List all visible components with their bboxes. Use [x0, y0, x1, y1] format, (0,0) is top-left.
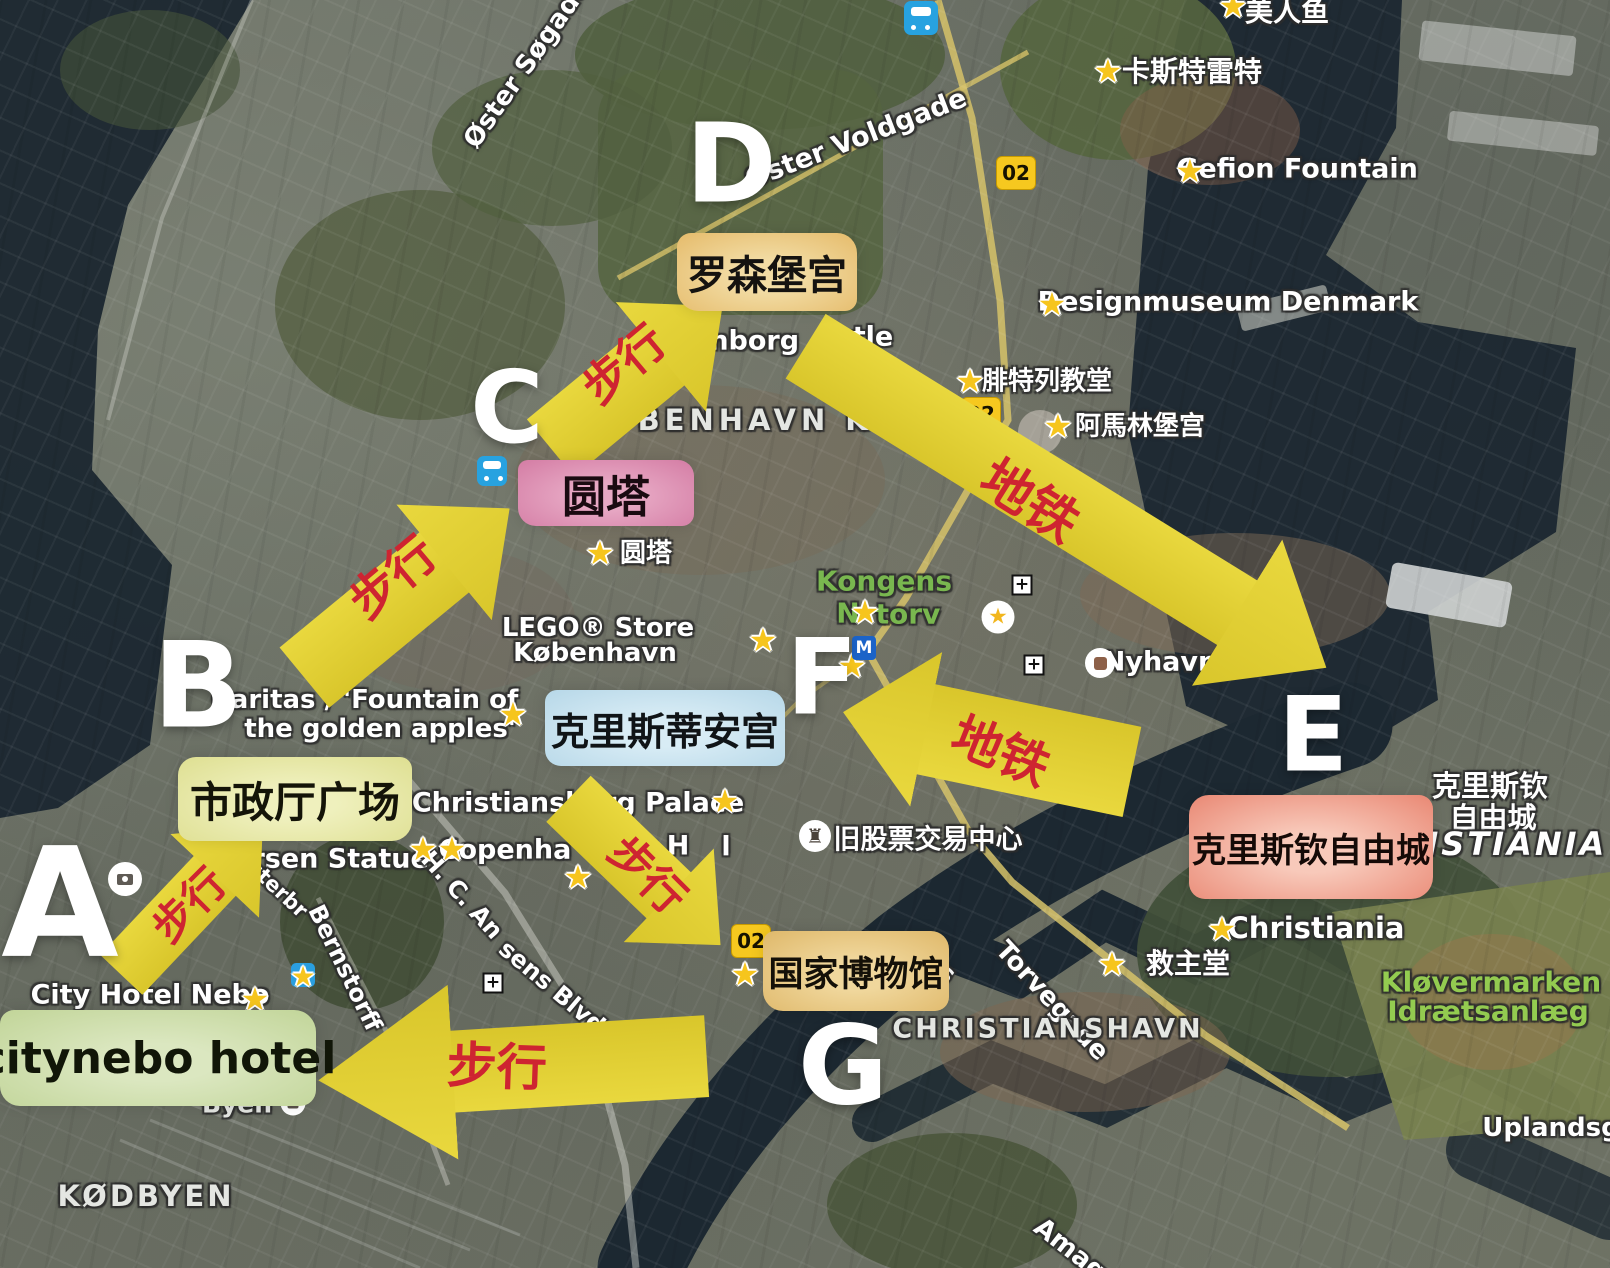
poi-star-icon[interactable]: ★: [438, 833, 467, 865]
rosenborg-castle-label: 罗森堡宫: [677, 233, 857, 311]
christiania-freetown-label: 克里斯钦自由城: [1189, 795, 1433, 899]
map-place-label: Christiania: [1228, 911, 1405, 945]
route-letter-A: A: [1, 828, 119, 980]
route-letter-D: D: [685, 109, 776, 219]
route-letter-C: C: [470, 358, 543, 458]
saved-place-icon[interactable]: ★: [982, 601, 1015, 634]
train-station-icon[interactable]: [904, 1, 938, 35]
transit-star-icon[interactable]: ★: [291, 963, 315, 987]
map-place-label: KØDBYEN: [57, 1179, 234, 1213]
poi-star-icon: ★: [290, 963, 315, 991]
route-letter-E: E: [1278, 684, 1348, 787]
route-02-badge[interactable]: 02: [996, 156, 1036, 190]
map-place-label: 美人鱼: [1245, 0, 1329, 30]
map-place-label: torv: [876, 598, 941, 631]
route-letter-B: B: [153, 628, 244, 747]
map-place-label: Idrætsanlæg: [1387, 995, 1588, 1028]
map-place-label: Kongens: [816, 565, 952, 598]
christiansborg-palace-label: 克里斯蒂安宫: [545, 690, 785, 766]
poi-star-icon[interactable]: ★: [1094, 55, 1123, 87]
map-place-label: CHRISTIANSHAVN: [892, 1014, 1203, 1045]
route-letter-F: F: [786, 625, 858, 730]
arrow-mode-label: 步行: [446, 1025, 548, 1100]
stock-exchange-icon[interactable]: ♜: [799, 820, 831, 852]
poi-star-icon[interactable]: ★: [499, 698, 528, 730]
map-place-label: Designmuseum Denmark: [1038, 287, 1419, 318]
poi-star-icon[interactable]: ★: [1098, 948, 1127, 980]
map-place-label: 救主堂: [1146, 942, 1230, 982]
poi-star-icon[interactable]: ★: [1176, 155, 1205, 187]
map-place-label: 圆塔: [620, 533, 672, 570]
poi-star-icon[interactable]: ★: [1208, 913, 1237, 945]
citynebo-hotel-label: citynebo hotel: [0, 1010, 316, 1106]
poi-star-icon[interactable]: ★: [1219, 0, 1248, 22]
poi-star-icon[interactable]: ★: [1038, 288, 1067, 320]
poi-star-icon[interactable]: ★: [749, 624, 778, 656]
map-canvas: 美人鱼卡斯特雷特Gefion FountainDesignmuseum Denm…: [0, 0, 1610, 1268]
national-museum-label: 国家博物馆: [763, 931, 949, 1011]
poi-star-icon[interactable]: ★: [711, 785, 740, 817]
map-place-label: Gefion Fountain: [1176, 154, 1418, 185]
map-place-label: 卡斯特雷特: [1122, 50, 1262, 90]
route-letter-G: G: [798, 1011, 888, 1121]
city-hall-square-label: 市政厅广场: [178, 757, 412, 841]
nyhavn-place-icon[interactable]: [1085, 648, 1115, 678]
poi-star-icon[interactable]: ★: [731, 958, 760, 990]
brown-square-icon: [1094, 657, 1107, 670]
poi-star-icon[interactable]: ★: [586, 537, 615, 569]
poi-star-icon[interactable]: ★: [409, 833, 438, 865]
map-place-label: København: [513, 638, 677, 668]
round-tower-label: 圆塔: [518, 460, 694, 526]
map-place-label: the golden apples': [244, 714, 516, 744]
map-place-label: Uplandsg: [1482, 1113, 1610, 1143]
